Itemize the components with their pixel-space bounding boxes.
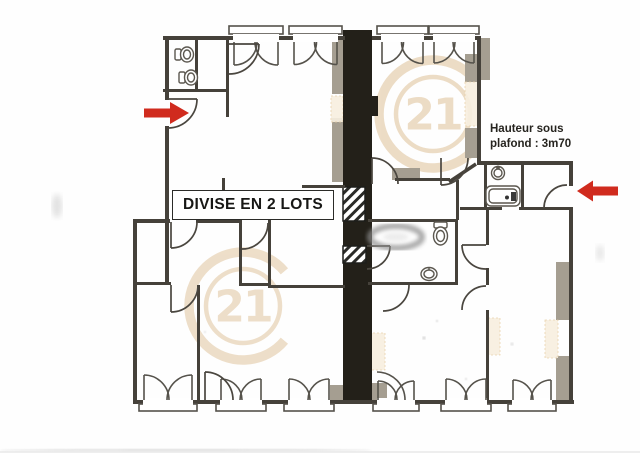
wall-segment [486, 268, 489, 285]
watermark-21-text: 21 [404, 90, 461, 141]
ceiling-height-note: Hauteur sous plafond : 3m70 [490, 122, 590, 151]
door [205, 372, 233, 400]
sink-icon [421, 268, 437, 281]
wall-segment [569, 209, 573, 404]
watermark-21-text: 21 [214, 282, 271, 333]
door-arc [171, 222, 197, 248]
division-label: DIVISE EN 2 LOTS [172, 190, 334, 220]
wall-segment [424, 36, 433, 40]
gray-block [332, 118, 343, 182]
right-entrance-arrow-icon [577, 181, 618, 202]
door [372, 158, 398, 184]
door-arc [205, 372, 233, 400]
wall-segment [338, 36, 345, 40]
cream-patch [488, 318, 500, 355]
window [216, 379, 266, 411]
gray-block [556, 356, 569, 402]
wall-segment [519, 207, 573, 210]
window [139, 375, 197, 411]
wall-segment [455, 219, 458, 285]
entrance-door-right-arc [544, 185, 567, 208]
scan-page-edge-shadow-light [0, 451, 640, 453]
wall-segment [239, 219, 242, 285]
hatched-opening [343, 187, 365, 221]
door-arc [462, 286, 486, 310]
door [462, 245, 486, 269]
gray-block [556, 262, 569, 320]
wall-segment [239, 283, 271, 286]
left-entrance-arrow-icon [144, 102, 189, 124]
window [229, 26, 283, 65]
ceiling-note-line2: plafond : 3m70 [490, 137, 590, 152]
wall-segment [133, 219, 137, 404]
wall-segment [268, 285, 345, 288]
cream-patch [465, 82, 478, 126]
wall-segment [521, 163, 524, 209]
wall-segment [165, 126, 169, 285]
wall-segment [226, 92, 229, 117]
ceiling-note-line1: Hauteur sous [490, 122, 590, 137]
door [171, 222, 197, 248]
window [508, 380, 556, 411]
wall-segment [302, 185, 345, 188]
division-label-text: DIVISE EN 2 LOTS [183, 196, 323, 214]
door-arc [462, 245, 486, 269]
shaft-pilaster [365, 96, 378, 116]
wall-segment [372, 36, 381, 40]
wall-segment [163, 89, 229, 92]
wall-segment [456, 180, 459, 220]
bathtub-icon [486, 186, 520, 206]
bathtub-blurred-icon [370, 226, 422, 248]
wall-segment [279, 36, 293, 40]
wall-segment [477, 161, 573, 165]
wall-segment [460, 207, 502, 210]
wall-segment [477, 36, 481, 164]
scanned-floor-plan-page: 21 21 [0, 0, 640, 453]
wall-segment [226, 36, 229, 92]
toilet-icon [434, 222, 448, 245]
door-arc [383, 285, 409, 311]
toilet-icon [179, 70, 198, 85]
gray-block [465, 54, 478, 82]
cream-patch [331, 96, 343, 122]
gray-block [481, 38, 490, 80]
wall-segment [368, 282, 458, 285]
door-arc [372, 158, 398, 184]
door-arc [242, 223, 268, 249]
wall-segment [268, 219, 271, 287]
century21-watermark-top-right: 21 [379, 60, 474, 168]
hatched-opening [343, 246, 366, 263]
wall-segment [133, 219, 170, 223]
window [441, 379, 491, 411]
wall-segment [197, 285, 200, 400]
sink-icon [492, 166, 505, 179]
toilet-icon [175, 47, 194, 62]
gray-block [465, 128, 478, 158]
floor-plan-drawing: 21 21 [0, 0, 640, 453]
wall-segment [133, 282, 171, 285]
wall-segment [486, 207, 489, 245]
gray-block [330, 385, 343, 401]
window [284, 379, 334, 411]
wall-segment [569, 161, 573, 186]
cream-patch [545, 320, 558, 358]
